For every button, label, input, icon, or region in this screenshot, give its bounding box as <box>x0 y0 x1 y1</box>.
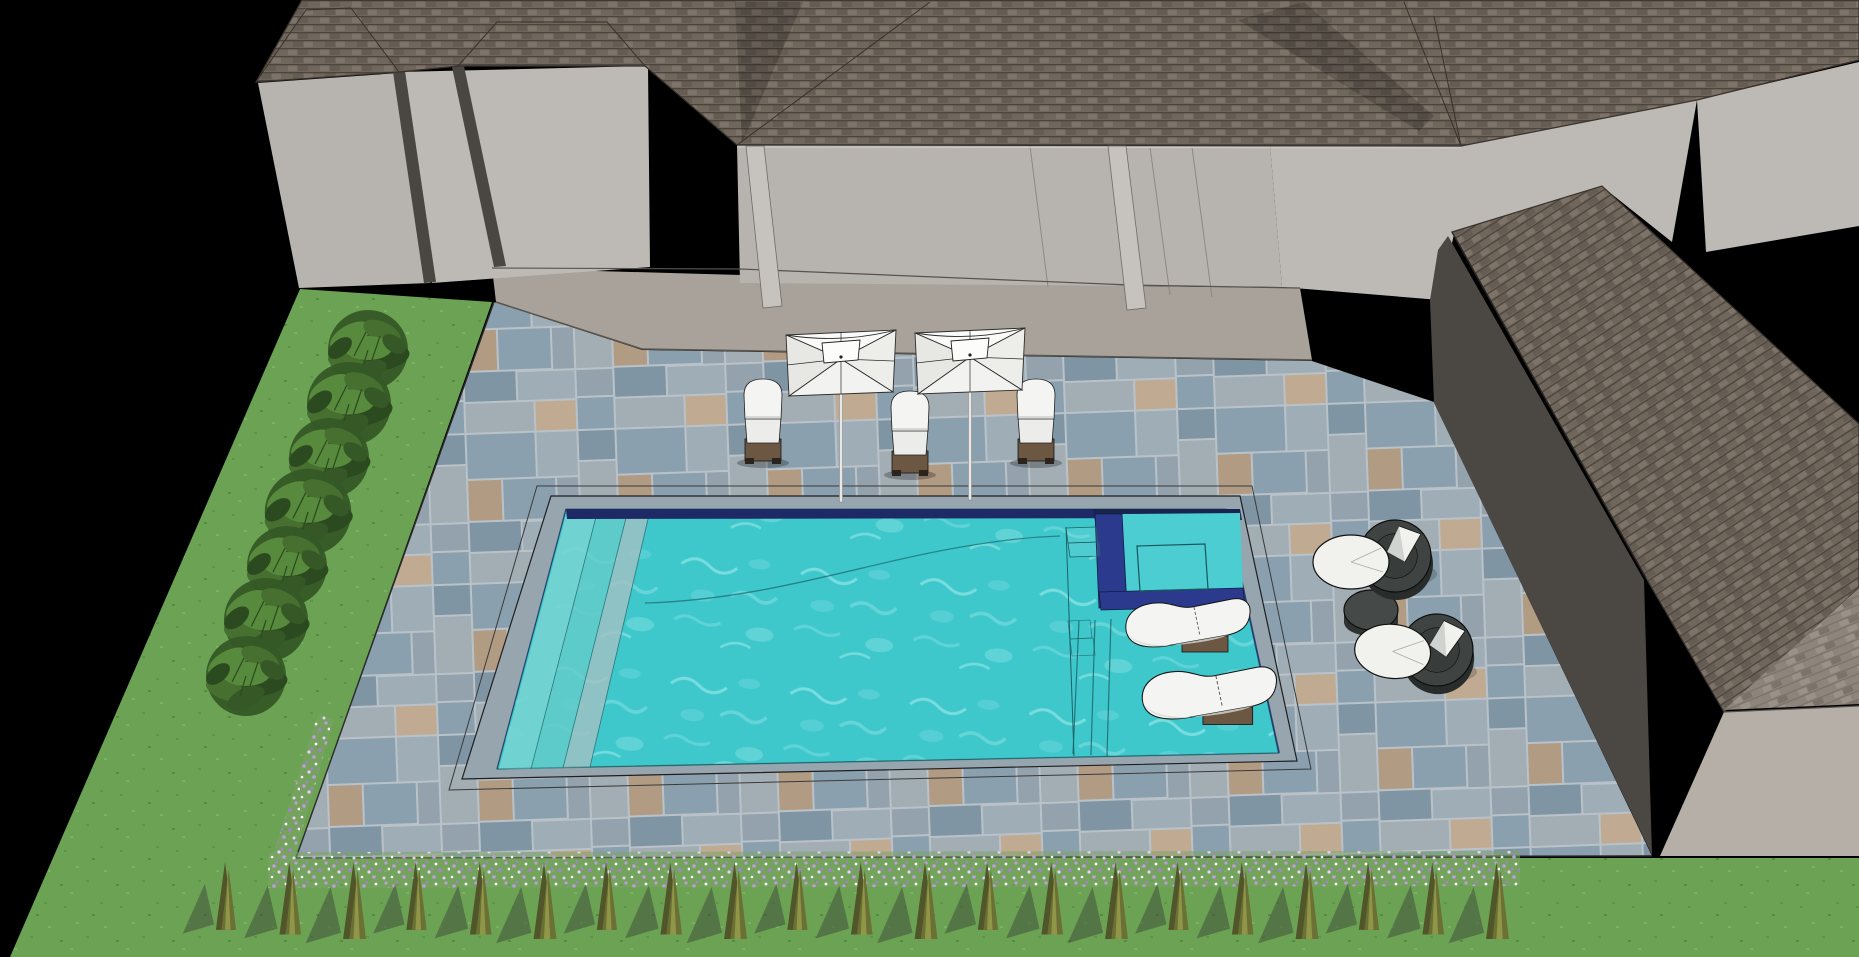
render-viewport <box>0 0 1859 957</box>
pool <box>449 486 1311 790</box>
spa <box>1093 509 1245 610</box>
covered-patio-back-wall <box>737 145 1282 287</box>
scene-3d-render <box>0 0 1859 957</box>
wall-recessed <box>399 66 650 283</box>
